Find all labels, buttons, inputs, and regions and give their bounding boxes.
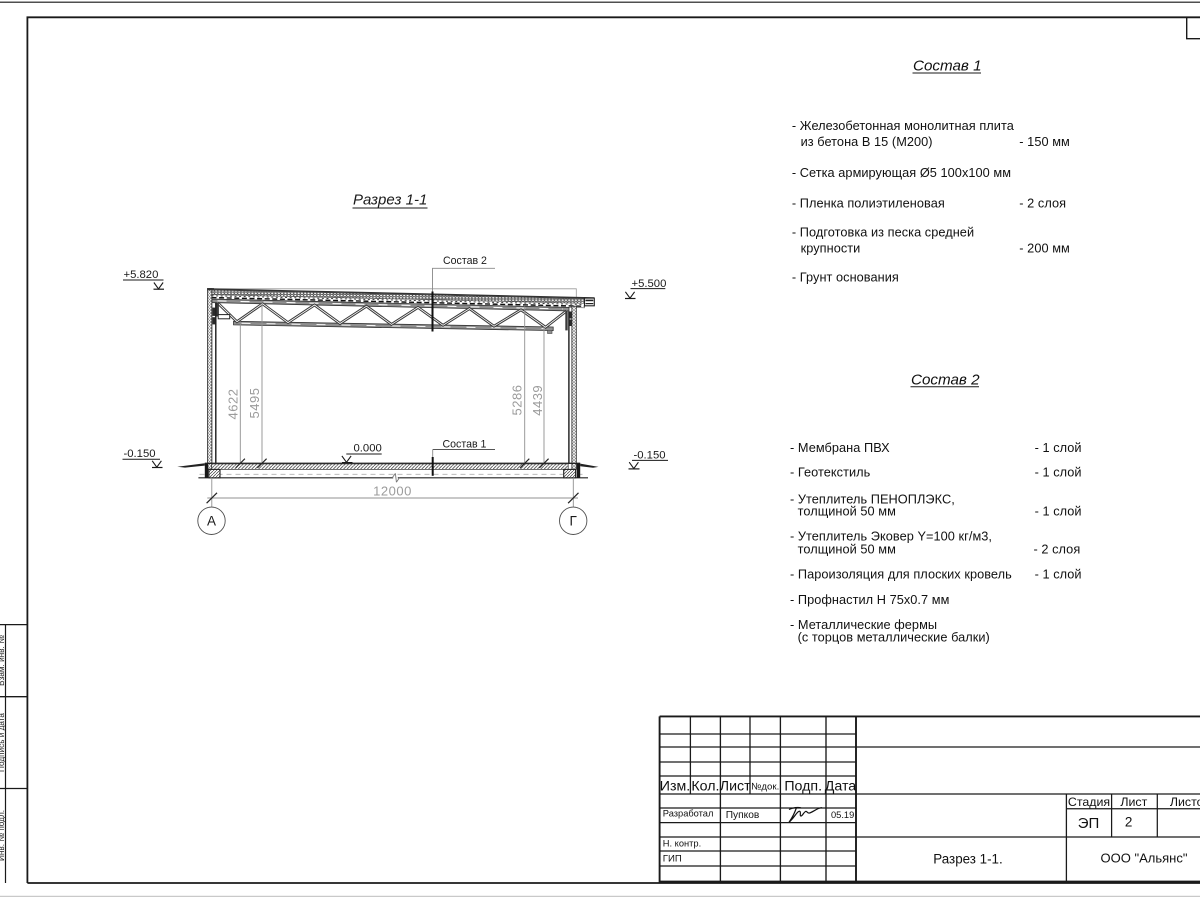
svg-text:Дата: Дата [825,778,857,794]
svg-text:Взам. инв. №: Взам. инв. № [0,635,6,686]
svg-text:ЭП: ЭП [1078,815,1100,832]
svg-text:Кол.: Кол. [691,778,719,794]
svg-text:0.000: 0.000 [354,443,382,455]
svg-text:2: 2 [1125,815,1133,830]
svg-text:толщиной 50 мм: толщиной 50 мм [798,541,896,556]
svg-text:- 1 слой: - 1 слой [1035,504,1082,519]
svg-text:- 1 слой: - 1 слой [1035,465,1082,480]
svg-text:5286: 5286 [510,385,525,416]
svg-text:- 200 мм: - 200 мм [1019,241,1070,256]
svg-text:Стадия: Стадия [1068,795,1110,809]
svg-text:Состав 1: Состав 1 [913,58,982,75]
svg-text:+5.500: +5.500 [632,278,667,290]
svg-text:Разрез 1-1: Разрез 1-1 [353,192,427,209]
svg-text:Г: Г [570,514,578,529]
svg-text:из бетона В 15 (М200): из бетона В 15 (М200) [801,134,933,149]
svg-text:- Пароизоляция для плоских кро: - Пароизоляция для плоских кровель [790,567,1012,582]
svg-text:Листов: Листов [1170,795,1200,809]
svg-text:- Геотекстиль: - Геотекстиль [790,465,871,480]
svg-text:- 150 мм: - 150 мм [1019,134,1070,149]
svg-text:4622: 4622 [225,389,240,420]
svg-text:05.19: 05.19 [831,810,854,820]
svg-text:Состав 2: Состав 2 [911,371,980,388]
svg-text:- Грунт основания: - Грунт основания [792,270,899,285]
svg-text:- Железобетонная монолитная п: - Железобетонная монолитная плита [792,118,1015,133]
svg-text:Разрез 1-1.: Разрез 1-1. [933,851,1002,866]
svg-text:Пупков: Пупков [726,810,760,821]
svg-text:- 2 слоя: - 2 слоя [1034,541,1081,556]
svg-text:№док.: №док. [751,782,779,793]
svg-text:Подпись и дата: Подпись и дата [0,713,6,772]
svg-text:ООО "Альянс": ООО "Альянс" [1101,851,1188,866]
svg-text:Инв. № подл.: Инв. № подл. [0,810,6,861]
svg-text:5495: 5495 [247,388,262,419]
svg-text:- Профнастил Н 75х0.7 мм: - Профнастил Н 75х0.7 мм [790,592,949,607]
svg-text:толщиной 50 мм: толщиной 50 мм [798,504,896,519]
svg-text:- Мембрана ПВХ: - Мембрана ПВХ [790,440,890,455]
svg-text:Разработал: Разработал [663,809,714,819]
svg-text:Н. контр.: Н. контр. [663,838,701,848]
svg-text:- Подготовка из песка средней: - Подготовка из песка средней [792,224,974,239]
svg-text:- 2 слоя: - 2 слоя [1019,196,1066,211]
svg-text:- 1 слой: - 1 слой [1035,567,1082,582]
svg-text:(с торцов металлические балки): (с торцов металлические балки) [798,630,990,645]
svg-text:крупности: крупности [801,241,861,256]
svg-text:- 1 слой: - 1 слой [1035,440,1082,455]
svg-text:12000: 12000 [373,483,412,498]
svg-text:А: А [207,514,216,529]
svg-text:Лист: Лист [720,778,751,794]
svg-text:ГИП: ГИП [663,853,682,864]
svg-text:Изм.: Изм. [660,778,690,794]
svg-text:- Пленка полиэтиленовая: - Пленка полиэтиленовая [792,196,945,211]
svg-text:Состав 2: Состав 2 [443,255,487,267]
svg-text:4439: 4439 [530,385,545,416]
svg-text:Состав 1: Состав 1 [443,438,487,450]
svg-text:-0.150: -0.150 [124,448,156,460]
svg-text:+5.820: +5.820 [124,269,159,281]
svg-text:- Сетка армирующая Ø5 100х100: - Сетка армирующая Ø5 100х100 мм [792,165,1011,180]
svg-text:Подп.: Подп. [784,778,822,794]
svg-text:Лист: Лист [1120,795,1147,809]
svg-text:-0.150: -0.150 [634,450,666,462]
